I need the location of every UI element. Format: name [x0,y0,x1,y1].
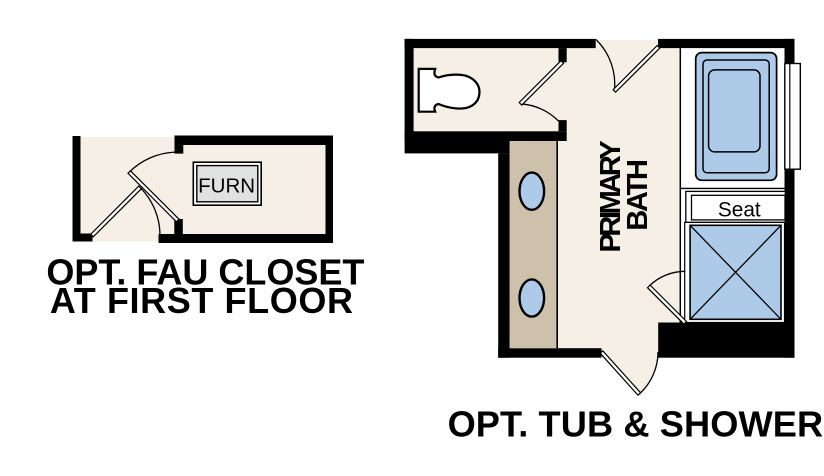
svg-text:FURN: FURN [198,175,255,198]
svg-text:BATH: BATH [622,161,654,231]
svg-text:OPT. TUB & SHOWER: OPT. TUB & SHOWER [448,404,824,445]
svg-text:Seat: Seat [718,198,761,221]
svg-text:AT FIRST FLOOR: AT FIRST FLOOR [50,280,354,321]
